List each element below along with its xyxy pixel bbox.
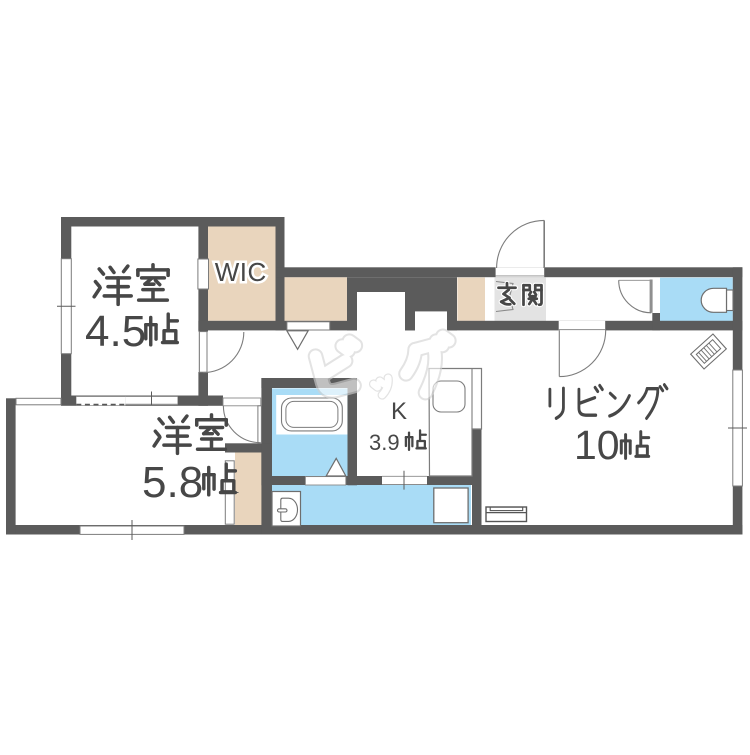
svg-text:4.5: 4.5 xyxy=(85,307,146,356)
svg-text:WIC: WIC xyxy=(215,257,267,287)
svg-text:10: 10 xyxy=(574,422,620,468)
svg-text:K: K xyxy=(391,398,407,425)
svg-text:3.9: 3.9 xyxy=(369,430,400,455)
svg-text:5.8: 5.8 xyxy=(142,458,203,507)
